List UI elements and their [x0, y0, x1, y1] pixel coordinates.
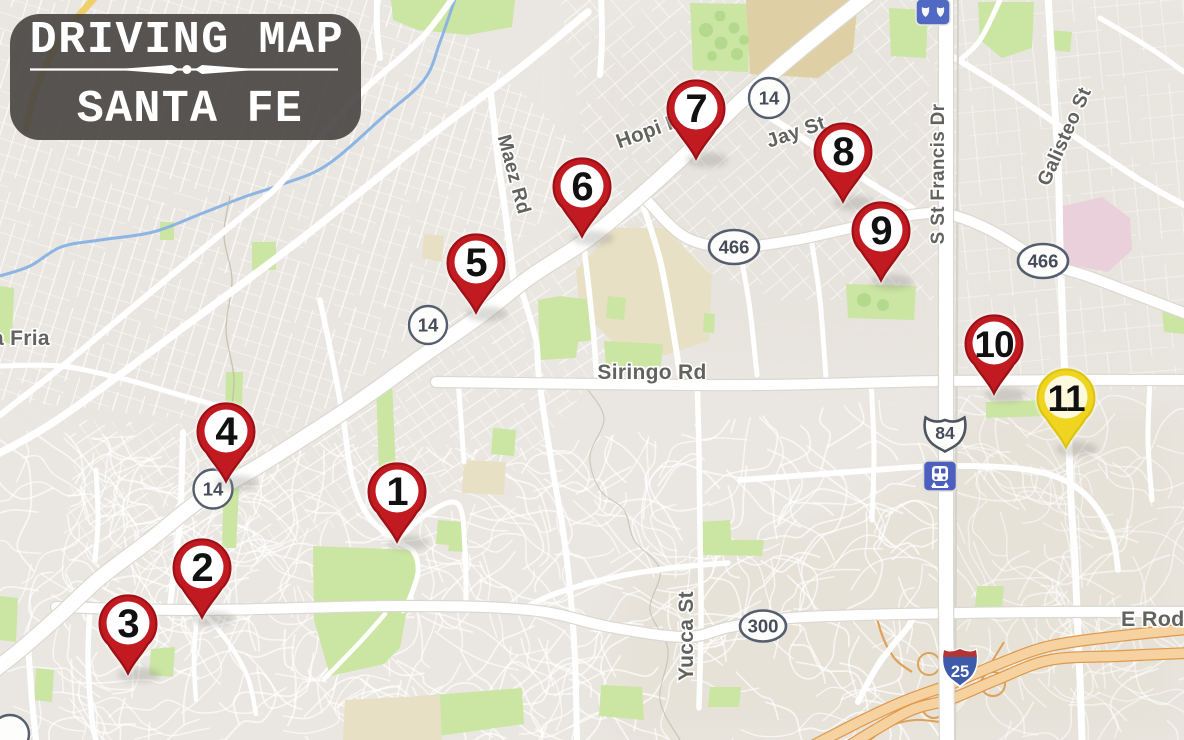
svg-text:5: 5: [465, 241, 487, 285]
svg-text:1: 1: [386, 470, 408, 514]
svg-text:11: 11: [1047, 378, 1085, 419]
svg-text:6: 6: [571, 165, 592, 209]
svg-text:466: 466: [719, 237, 750, 258]
svg-text:84: 84: [935, 423, 955, 443]
svg-text:14: 14: [418, 315, 439, 336]
svg-text:a Fria: a Fria: [0, 327, 50, 350]
svg-text:8: 8: [832, 130, 854, 174]
svg-text:2: 2: [191, 546, 212, 590]
svg-text:DRIVING MAP: DRIVING MAP: [30, 15, 345, 66]
svg-text:466: 466: [1028, 251, 1059, 272]
svg-text:25: 25: [951, 663, 969, 681]
svg-text:3: 3: [117, 602, 138, 646]
svg-text:14: 14: [759, 88, 780, 109]
svg-text:E Rodeo: E Rodeo: [1121, 607, 1184, 631]
svg-text:300: 300: [748, 616, 779, 637]
svg-text:Siringo Rd: Siringo Rd: [597, 361, 706, 384]
svg-text:Yucca St: Yucca St: [675, 591, 698, 681]
svg-text:9: 9: [870, 209, 891, 253]
svg-text:S St Francis Dr: S St Francis Dr: [928, 103, 949, 244]
svg-text:4: 4: [215, 410, 238, 454]
svg-text:10: 10: [974, 324, 1014, 365]
svg-text:7: 7: [685, 87, 706, 131]
svg-text:SANTA FE: SANTA FE: [77, 84, 303, 135]
